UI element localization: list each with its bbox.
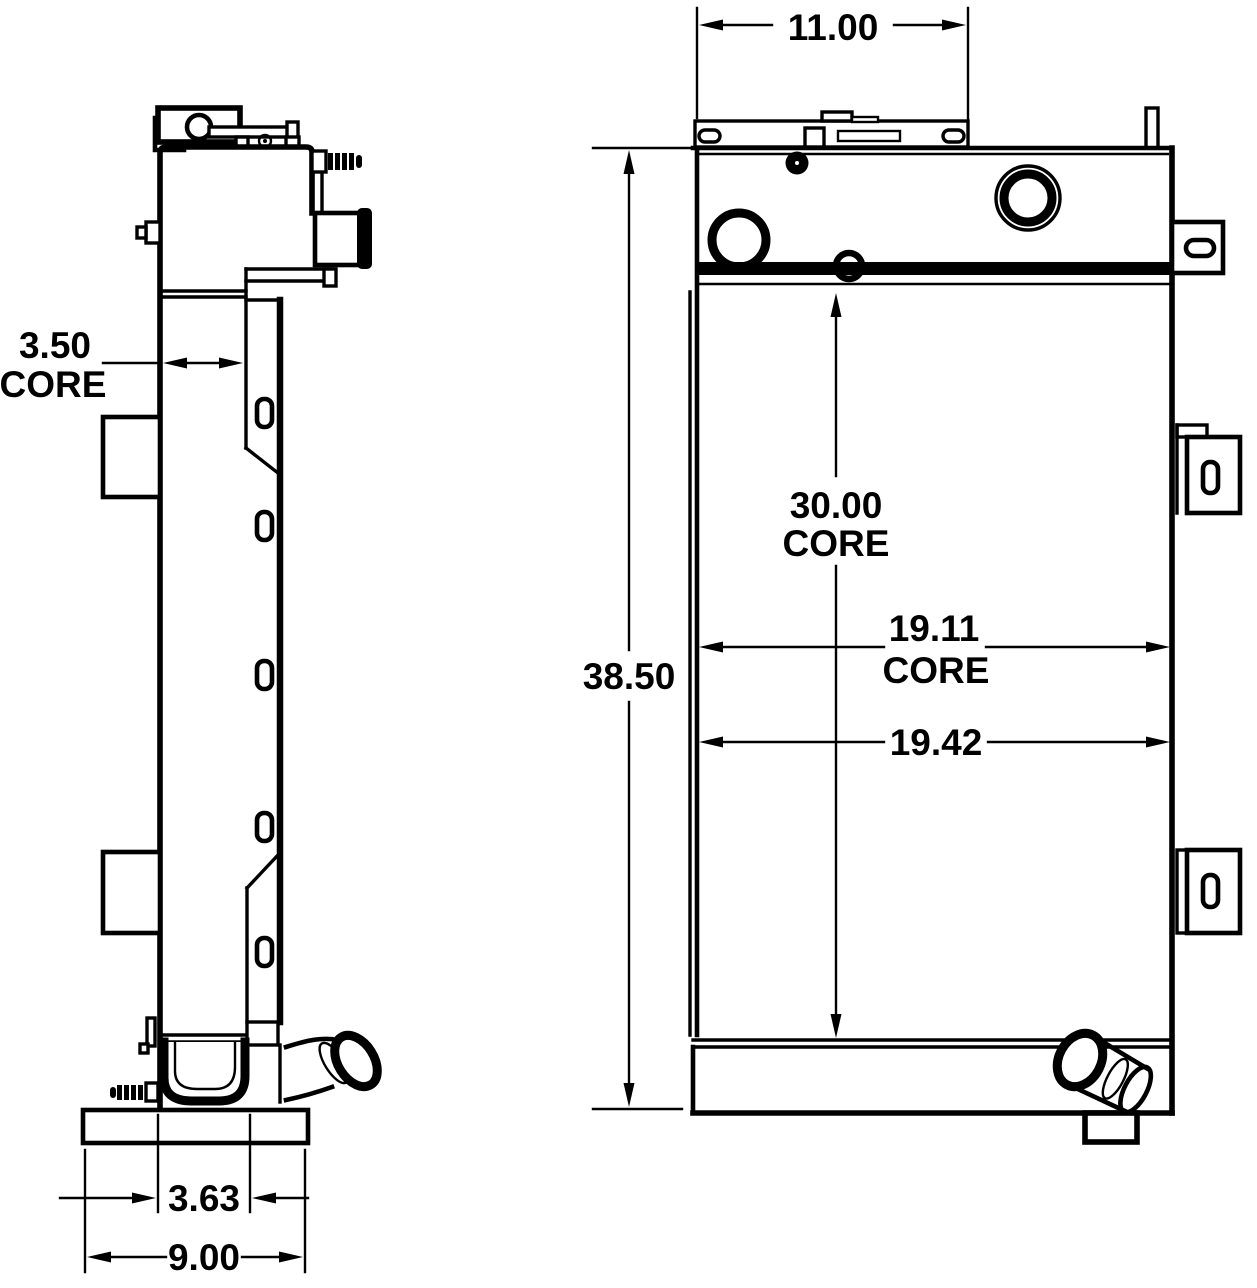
dim-overall-width-label: 19.42 (890, 722, 983, 763)
arrowhead (831, 293, 842, 317)
dim-foot-inset-label: 3.63 (168, 1178, 240, 1219)
drain-barb-fitting (110, 1083, 158, 1101)
base-plate (83, 1110, 308, 1143)
arrowhead (87, 1252, 111, 1263)
side-view-core (160, 269, 280, 1045)
plate-slot (699, 130, 720, 142)
arrowhead (252, 1193, 276, 1204)
dim-core-height-value: 30.00 (790, 485, 883, 526)
petcock-tip (137, 227, 146, 238)
dim-core-height: 30.00 CORE (783, 293, 890, 1038)
dim-core-width-suffix: CORE (883, 650, 990, 691)
step-stub (324, 269, 336, 286)
arrowhead (1146, 737, 1170, 748)
filler-flange (315, 213, 361, 265)
dim-core-depth-suffix: CORE (0, 364, 106, 405)
arrowhead (624, 150, 635, 174)
dim-core-width: 19.11 CORE (699, 608, 1170, 691)
arrowhead (624, 1083, 635, 1107)
mounting-slot (257, 661, 272, 689)
dim-overall-height-label: 38.50 (583, 656, 676, 697)
vent-tube (1146, 108, 1158, 148)
side-view-top-bracket (155, 108, 299, 150)
mount-bracket (103, 417, 160, 497)
drawing-canvas: 11.00 38.50 30.00 CORE 19.11 CORE (0, 0, 1257, 1288)
mount-bracket (103, 852, 160, 933)
arrowhead (163, 358, 187, 369)
dim-base-width-label: 9.00 (168, 1237, 240, 1278)
mounting-slot (1203, 462, 1218, 493)
outlet-pipe (280, 1028, 386, 1102)
top-plate (695, 121, 968, 147)
side-view (83, 108, 386, 1143)
mounting-slot (257, 813, 272, 841)
channel-foot (247, 1022, 278, 1045)
front-view-side-brackets (1172, 222, 1240, 933)
rivet-dot-center (795, 161, 799, 165)
front-view-top-plate (695, 112, 968, 147)
tank-bottom-band (697, 262, 1172, 275)
front-view-bottom-tank (693, 1025, 1172, 1142)
mounting-slot (257, 938, 272, 966)
dim-core-height-suffix: CORE (783, 523, 890, 564)
plate-tab (805, 128, 824, 147)
plate-bar (838, 131, 900, 141)
mounting-slot (1203, 875, 1218, 907)
inlet-opening (712, 213, 766, 267)
dim-core-depth-value: 3.50 (19, 325, 91, 366)
radiator-two-view-drawing: 11.00 38.50 30.00 CORE 19.11 CORE (0, 0, 1257, 1288)
arrowhead (699, 642, 723, 653)
bracket-pin-dot (263, 139, 267, 143)
dim-core-depth: 3.50 CORE (0, 325, 243, 405)
hose-barb-fitting (312, 151, 362, 172)
dim-overall-width: 19.42 (699, 722, 1170, 763)
bracket-bar (209, 127, 293, 137)
filler-neck-ring (1004, 174, 1052, 222)
filler-cap (357, 208, 372, 269)
arrowhead (831, 1014, 842, 1038)
mounting-slot (257, 399, 272, 427)
arrowhead (1146, 642, 1170, 653)
drain-lever-foot (140, 1044, 148, 1053)
dim-top-width: 11.00 (697, 7, 968, 127)
arrowhead (942, 20, 966, 31)
arrowhead (132, 1193, 156, 1204)
dim-overall-height: 38.50 (583, 148, 690, 1109)
dim-top-width-label: 11.00 (788, 7, 879, 48)
plate-tab (822, 112, 852, 121)
plate-tab (852, 117, 878, 122)
mounting-slot (257, 512, 272, 540)
arrowhead (699, 20, 723, 31)
petcock-body (146, 222, 160, 243)
dim-core-width-value: 19.11 (889, 608, 980, 649)
side-view-bottom (83, 1018, 386, 1143)
side-view-left-brackets (103, 417, 160, 933)
arrowhead (219, 358, 243, 369)
drain-lever (147, 1018, 155, 1046)
foot-tab (1085, 1113, 1137, 1142)
arrowhead (699, 737, 723, 748)
arrowhead (279, 1252, 303, 1263)
mounting-slot (1186, 240, 1214, 256)
channel-chamfer (246, 448, 278, 473)
plate-slot (943, 130, 964, 142)
channel-chamfer (247, 855, 278, 888)
